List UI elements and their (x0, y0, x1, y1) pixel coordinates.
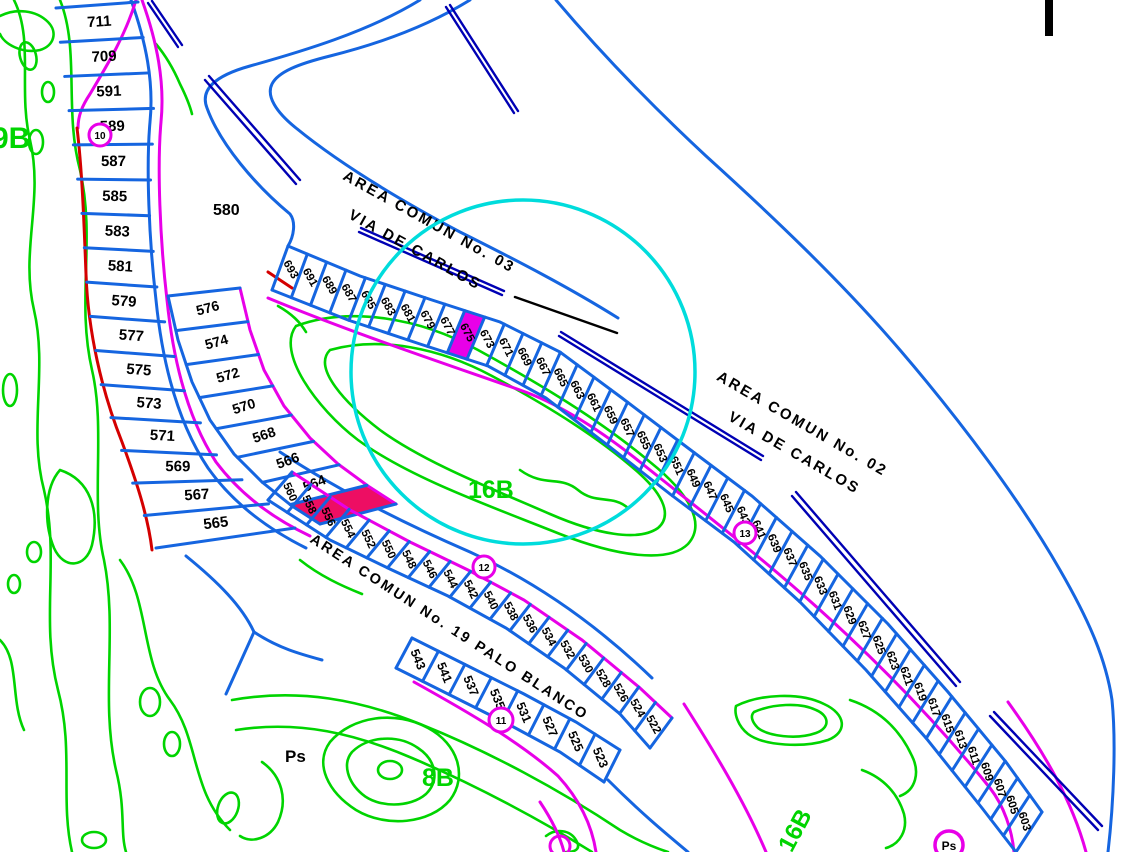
lot-number: 531 (513, 700, 534, 725)
lot-divider (122, 450, 217, 455)
marker-11: 11 (489, 708, 513, 732)
lot-number: 603 (1015, 811, 1032, 833)
road-edge (226, 632, 254, 694)
lot-number: 577 (118, 326, 144, 345)
cad-viewport[interactable]: 7117095915895875855835815795775755735715… (0, 0, 1136, 852)
lot-number: 581 (107, 257, 133, 275)
parcel-580-label: 580 (213, 202, 240, 219)
golf-blob (42, 82, 54, 102)
lot-number: 566 (274, 449, 302, 472)
lot-divider (111, 418, 200, 423)
marker-12: 12 (473, 556, 495, 578)
lot-number: 587 (101, 153, 126, 170)
lot-number: 575 (126, 361, 152, 380)
marker-10: 10 (89, 124, 111, 146)
lot-divider (78, 179, 151, 180)
parcel-map-drawing[interactable]: 7117095915895875855835815795775755735715… (0, 0, 1136, 852)
marker-10-number: 10 (94, 131, 106, 142)
lot-number: 568 (250, 423, 278, 446)
text-cursor-bar (1045, 0, 1053, 36)
lot-divider (91, 316, 165, 322)
road-edge (608, 780, 688, 852)
marker-13: 13 (734, 522, 756, 544)
golf-contours (0, 0, 916, 852)
median-line (148, 3, 178, 47)
lot-divider (199, 386, 272, 398)
lot-divider (156, 528, 295, 548)
lot-divider (168, 288, 240, 296)
lot-divider (186, 355, 258, 365)
lot-number: 570 (230, 395, 257, 417)
lot-divider (60, 37, 143, 42)
golf-blob (8, 575, 20, 593)
golf-contour (278, 306, 306, 332)
lot-number: 574 (203, 331, 230, 353)
course-label-16b-bottom: 16B (773, 805, 818, 852)
median-line (450, 5, 518, 111)
golf-contour (0, 640, 24, 730)
lot-number: 543 (407, 647, 428, 672)
median-line (446, 7, 514, 113)
lot-number: 576 (194, 297, 221, 318)
golf-blob (240, 762, 283, 840)
course-label-9b: 9B (0, 122, 30, 155)
golf-blob (213, 790, 243, 827)
lot-number: 591 (96, 83, 122, 101)
lot-divider (84, 248, 153, 252)
marker-ps-label: Ps (942, 839, 957, 852)
boundary-magenta (684, 704, 766, 852)
lot-number: 569 (165, 458, 190, 475)
course-label-8b: 8B (422, 764, 454, 792)
road-edge (254, 632, 322, 660)
median-line (209, 76, 300, 180)
lot-number: 527 (539, 714, 560, 739)
golf-blob (378, 761, 402, 779)
lot-number: 525 (565, 729, 586, 754)
golf-blob (752, 705, 827, 737)
lot-number: 571 (149, 427, 175, 445)
selection-circle (351, 200, 695, 544)
golf-blob (3, 374, 17, 406)
marker-11-number: 11 (496, 716, 507, 727)
lot-number: 572 (214, 364, 241, 386)
golf-blob (27, 542, 41, 562)
street-names: AREA COMUN No. 03 VIA DE CARLOS AREA COM… (307, 167, 891, 723)
lot-divider (87, 282, 157, 287)
marker-ps: Ps (935, 831, 963, 852)
golf-blob (164, 732, 180, 756)
lot-number: 537 (460, 674, 481, 699)
golf-contour (0, 11, 54, 51)
ps-label: Ps (285, 747, 306, 766)
lot-divider (56, 2, 138, 8)
survey-markers: 10 12 13 11 Ps (89, 124, 963, 852)
lot-number: 585 (102, 188, 127, 206)
lot-divider (65, 73, 149, 76)
golf-blob (47, 470, 95, 563)
lot-number: 573 (136, 394, 162, 413)
golf-contour (862, 770, 905, 848)
lot-divider (133, 480, 242, 483)
marker-13-number: 13 (739, 529, 751, 540)
strip-boundary (272, 290, 1016, 852)
lot-divider (216, 415, 291, 429)
median-line (990, 716, 1098, 830)
lot-number: 523 (590, 745, 611, 770)
lot-number: 567 (184, 486, 210, 505)
golf-blob (82, 832, 106, 848)
lot-number: 639 (765, 532, 783, 554)
strip-left-fan: 7117095915895875855835815795775755735715… (56, 2, 295, 548)
lot-number: 583 (104, 222, 130, 240)
lot-divider (176, 322, 248, 331)
lot-number: 711 (87, 13, 112, 32)
lot-divider (82, 213, 150, 215)
lot-divider (73, 144, 152, 145)
lot-number: 637 (780, 546, 798, 568)
golf-blob (140, 688, 160, 716)
golf-contour (120, 560, 230, 830)
lot-number: 709 (91, 48, 117, 66)
lot-number: 541 (434, 660, 455, 685)
marker-12-number: 12 (478, 563, 490, 574)
lot-number: 565 (202, 513, 229, 533)
survey-line (515, 297, 617, 333)
lot-number: 579 (111, 292, 137, 311)
road-edge (186, 556, 254, 632)
fairway-squiggle (520, 470, 628, 508)
median-line (152, 1, 182, 45)
course-label-16b: 16B (468, 476, 514, 504)
golf-blob (17, 40, 40, 71)
lot-divider (237, 441, 313, 457)
